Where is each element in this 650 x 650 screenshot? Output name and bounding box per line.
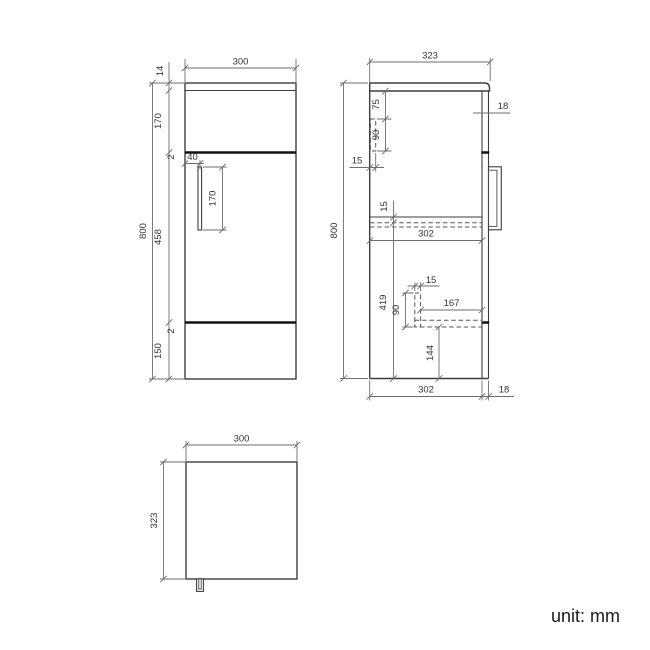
side-dim-support-height-lines [402,290,413,330]
side-dim-support-height-label: 90 [391,305,402,316]
front-cabinet-outline [185,83,296,379]
unit-note: unit: mm [551,606,620,626]
side-dim-support-length-label: 167 [444,298,460,309]
side-dim-bottom-clearance-lines [436,324,442,382]
side-dim-internal-depth-label: 302 [418,229,434,240]
side-dim-door-thickness-bottom-label: 18 [499,385,510,396]
side-door-panel-lines [482,91,489,379]
plan-dim-depth-label: 323 [149,513,160,529]
side-support-upright-hidden [415,293,421,327]
plan-dim-depth-lines [160,459,185,582]
side-dim-lower-section-label: 419 [378,295,389,311]
vanity-unit-dimension-drawing: 300 14 170 2 458 2 150 800 40 170 323 [0,0,650,650]
plan-dim-width-label: 300 [234,434,250,445]
side-dim-bottom-lines [367,381,515,401]
front-dim-height-label: 800 [138,223,149,239]
front-dim-handle-inset-label: 40 [187,152,198,163]
side-dim-depth-label: 323 [422,51,438,62]
side-dim-shelf-thickness-label: 15 [379,201,390,212]
front-dim-width-label: 300 [233,57,249,68]
plan-view: 300 323 [149,434,300,592]
side-dim-shelf-and-lower-lines [390,201,396,382]
side-shelf-hidden-lines [370,223,482,227]
side-dim-height-lines [340,80,368,382]
front-dim-plinth-label: 150 [153,343,164,359]
side-elevation-view: 323 18 800 75 90 15 15 419 302 15 90 167 [329,51,514,401]
front-dim-door-label: 458 [153,229,164,245]
front-door-handle [198,167,202,230]
side-worktop [370,83,490,91]
technical-drawing-page: 300 14 170 2 458 2 150 800 40 170 323 [0,0,650,650]
side-dim-depth-lines [367,58,494,82]
side-dim-support-width-label: 15 [426,275,437,286]
front-dim-handle-length-label: 170 [208,191,219,207]
plan-handle-outer [197,579,204,592]
front-dim-worktop-label: 14 [155,66,166,77]
front-dim-gap-top-label: 2 [166,154,177,159]
side-dim-height-label: 800 [329,223,340,239]
plan-cabinet-outline [186,462,297,579]
front-dim-panel-label: 170 [153,113,164,129]
side-support-rail-hidden [415,320,482,327]
front-elevation-view: 300 14 170 2 458 2 150 800 40 170 [138,57,299,383]
side-dim-door-thickness-top-label: 18 [498,101,509,112]
side-handle-outer [489,167,502,230]
side-dim-bracket-height-label: 90 [371,130,382,141]
front-dim-gap-bottom-label: 2 [166,328,177,333]
side-dim-internal-depth-bottom-label: 302 [418,385,434,396]
side-dim-bracket-drop-label: 75 [371,99,382,110]
side-dim-bracket-width-label: 15 [352,156,363,167]
side-dim-bottom-clearance-label: 144 [425,345,436,361]
